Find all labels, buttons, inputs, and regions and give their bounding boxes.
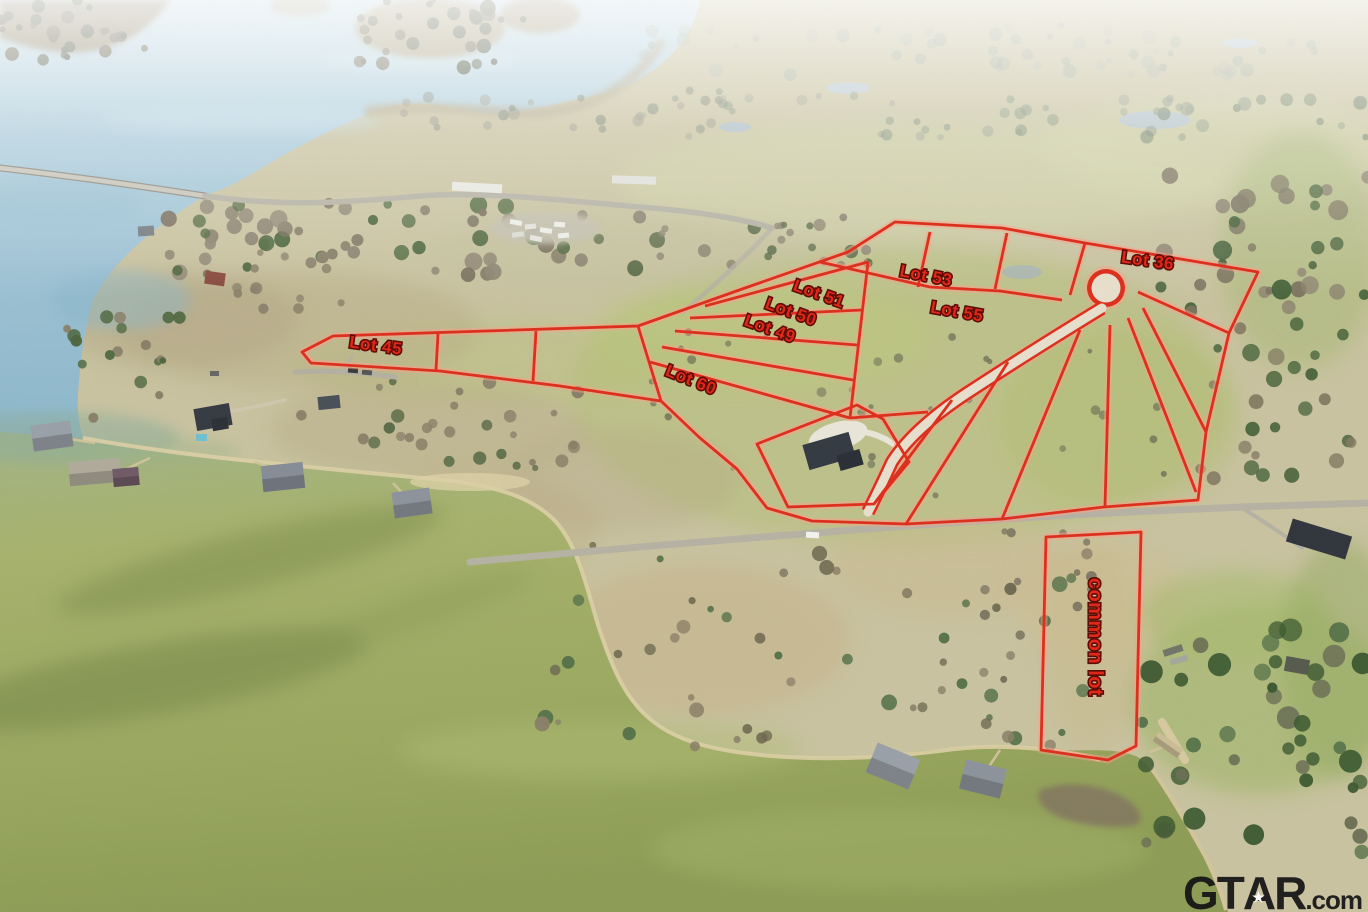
watermark-brand-a: A★ — [1243, 870, 1274, 912]
aerial-scene: Lot 45Lot 51Lot 50Lot 49Lot 53Lot 55Lot … — [0, 0, 1368, 912]
watermark-brand-post: R — [1274, 867, 1305, 912]
watermark-brand-pre: GT — [1183, 867, 1243, 912]
photo-grain — [0, 0, 1368, 912]
watermark-gtar: GTA★R.com — [1183, 870, 1362, 912]
watermark-suffix: .com — [1305, 885, 1362, 912]
star-icon: ★ — [1252, 890, 1265, 904]
aerial-photo: Lot 45Lot 51Lot 50Lot 49Lot 53Lot 55Lot … — [0, 0, 1368, 912]
